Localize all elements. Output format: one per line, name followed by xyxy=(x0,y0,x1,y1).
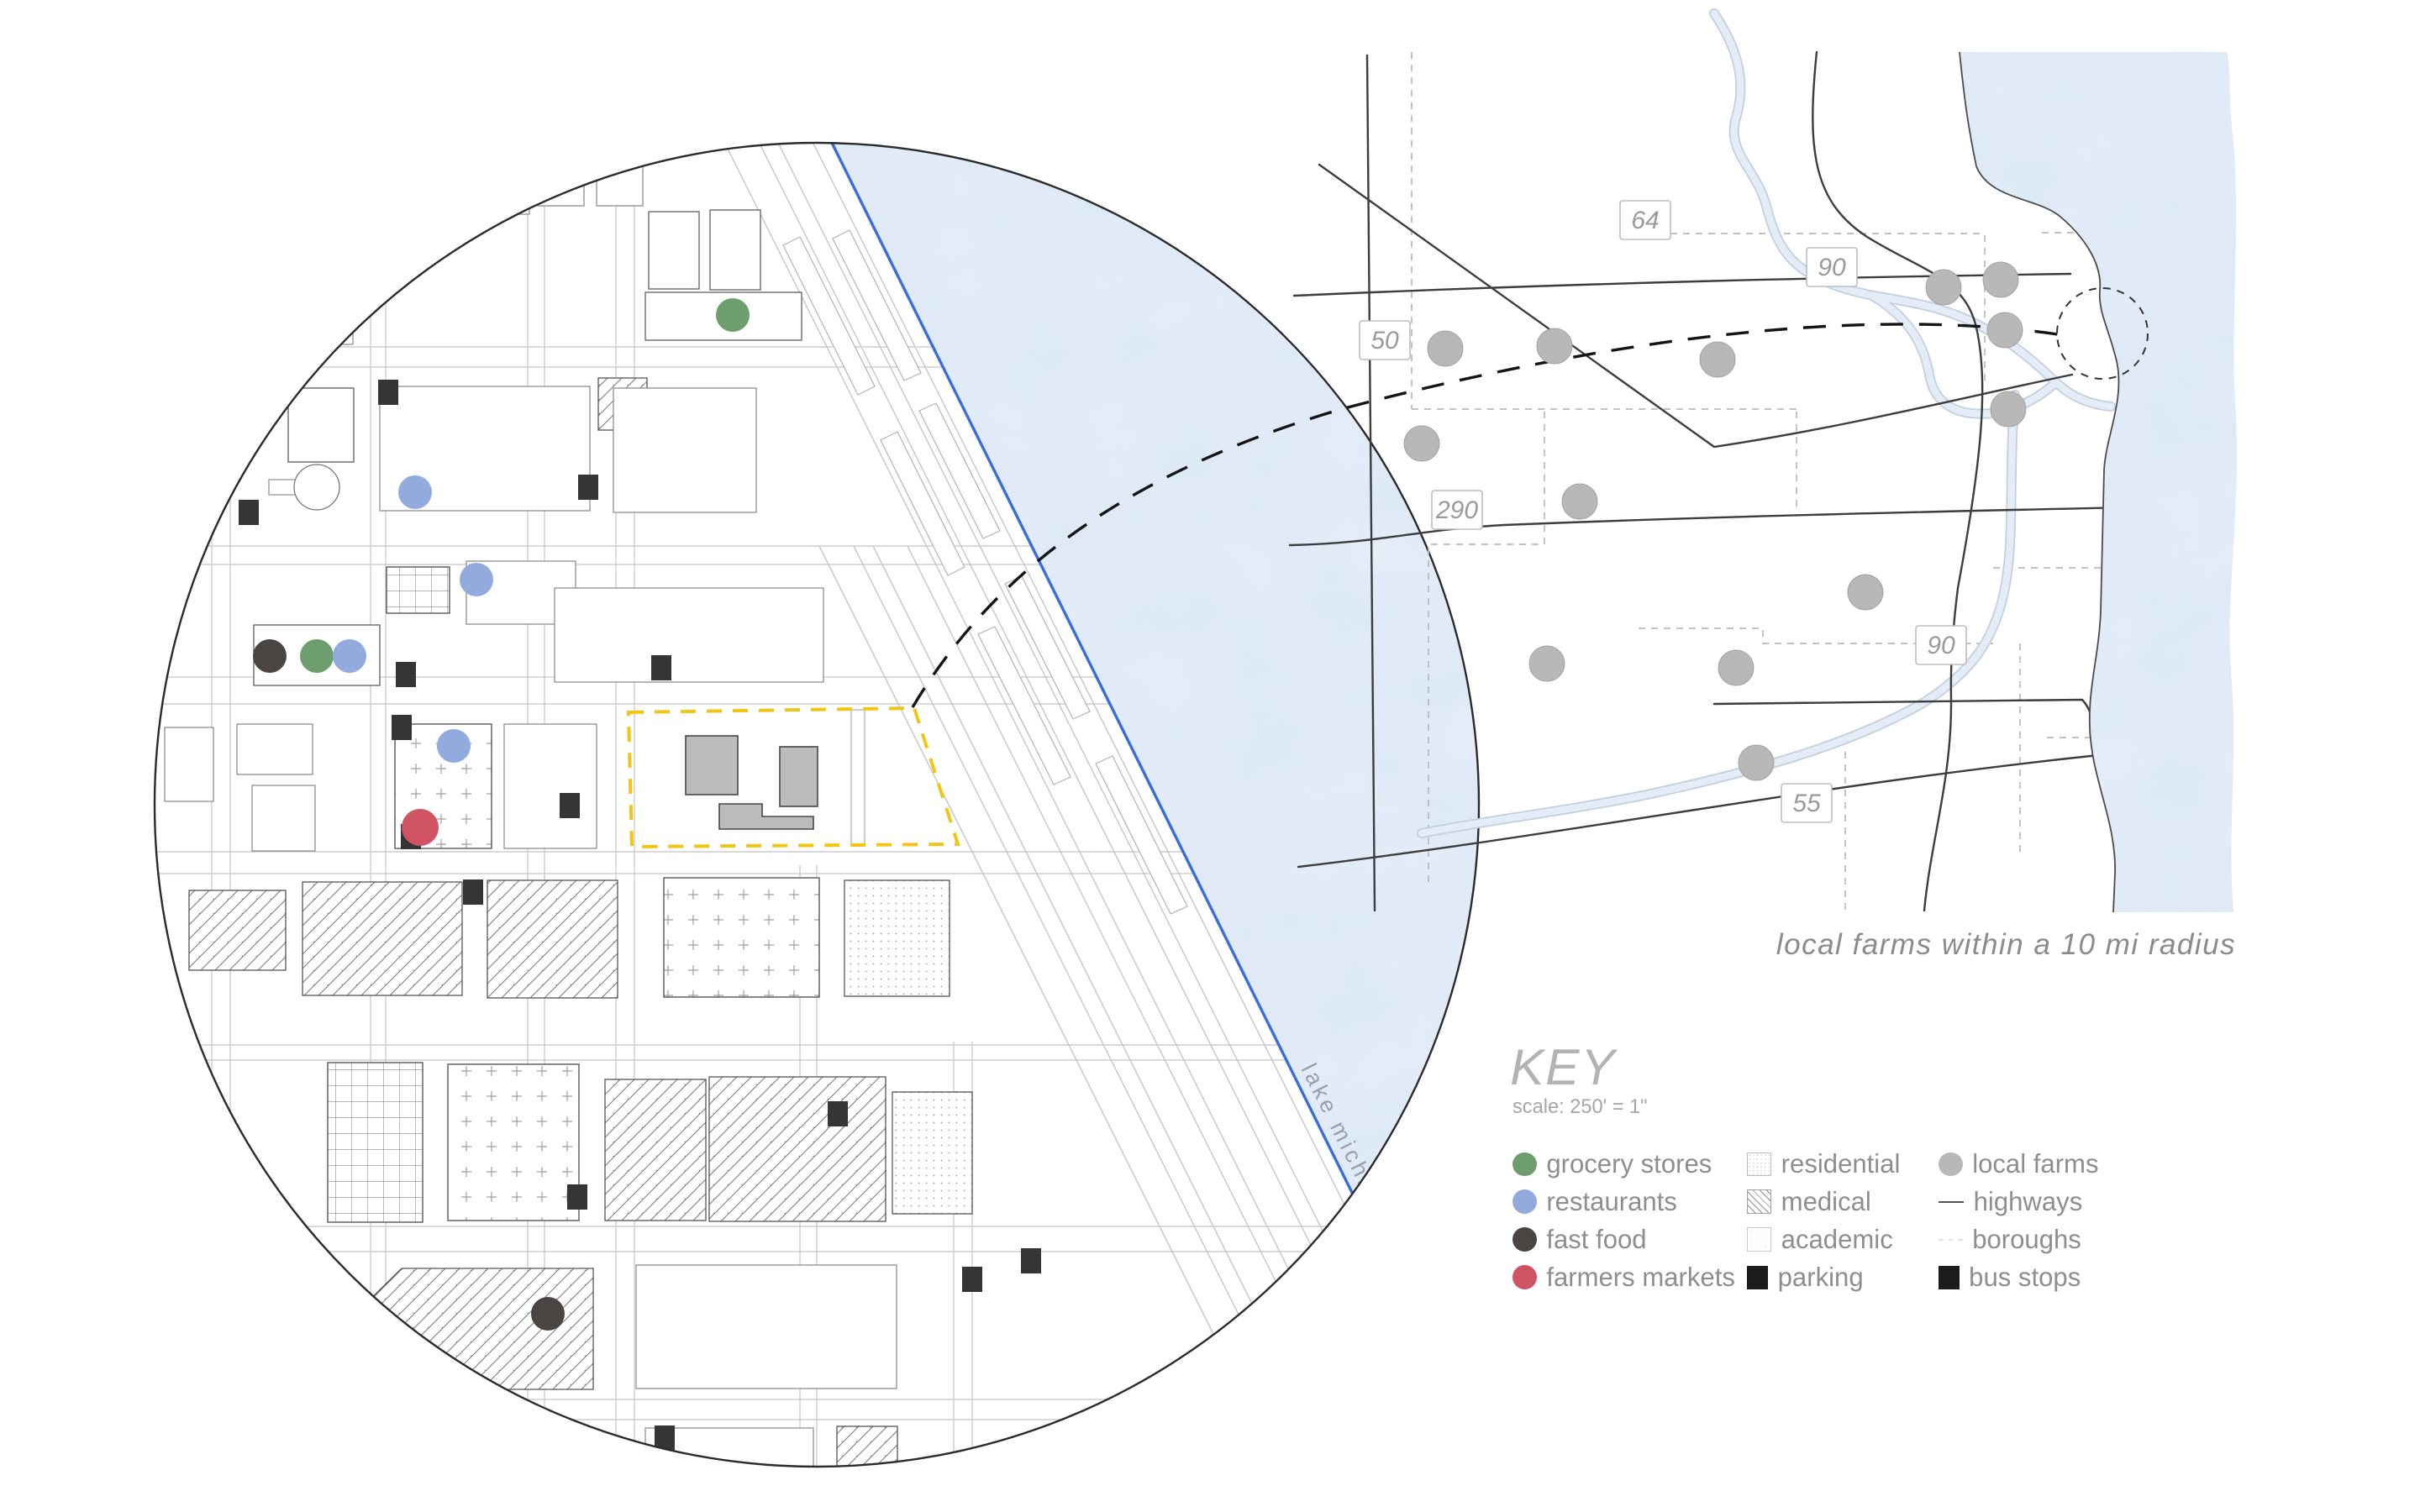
key-scale-note: scale: 250' = 1" xyxy=(1512,1098,1648,1118)
local-farm-dot xyxy=(1562,484,1597,519)
highway-shield-number: 290 xyxy=(1435,496,1478,524)
legend-label: local farms xyxy=(1972,1151,2098,1177)
legend-label: residential xyxy=(1781,1151,1901,1177)
highway-shield-number: 50 xyxy=(1370,327,1399,354)
key-title: KEY xyxy=(1510,1042,1616,1092)
transit-square xyxy=(828,1101,848,1126)
legend-symbol-dot xyxy=(1512,1227,1537,1252)
transit-square xyxy=(560,793,580,818)
poster-canvas: lake michigan xyxy=(0,0,2420,1512)
legend-label: grocery stores xyxy=(1546,1151,1712,1177)
highway-shield: 290 xyxy=(1432,491,1482,529)
local-farm-dot xyxy=(1991,391,2026,427)
transit-square xyxy=(378,380,398,405)
legend-row: farmers markets xyxy=(1512,1264,1735,1291)
highway-shield: 50 xyxy=(1360,321,1410,360)
local-farm-dot xyxy=(1537,328,1572,364)
grocery-store-dot xyxy=(300,639,334,673)
legend-column-amenities: grocery storesrestaurantsfast foodfarmer… xyxy=(1512,1151,1735,1302)
restaurant-dot xyxy=(398,475,432,509)
legend-row: local farms xyxy=(1939,1151,2099,1178)
legend-row: grocery stores xyxy=(1512,1151,1735,1178)
transit-square xyxy=(1021,1248,1041,1273)
highway-shield-number: 55 xyxy=(1792,790,1821,817)
legend-row: academic xyxy=(1747,1226,1900,1253)
local-farm-dot xyxy=(1404,426,1439,461)
transit-square xyxy=(392,715,412,740)
legend-column-regional: local farmshighwaysboroughsbus stops xyxy=(1939,1151,2099,1302)
legend-symbol-sq-acad xyxy=(1747,1227,1771,1252)
grocery-store-dot xyxy=(716,298,750,332)
local-farm-dot xyxy=(1718,650,1754,685)
legend-label: academic xyxy=(1781,1226,1893,1252)
legend-label: boroughs xyxy=(1972,1226,2081,1252)
local-farm-dot xyxy=(1926,270,1961,305)
local-farm-dot xyxy=(1700,342,1735,377)
local-farm-dot xyxy=(1739,745,1774,780)
highway-shield: 55 xyxy=(1781,784,1832,822)
legend-row: highways xyxy=(1939,1189,2099,1215)
legend-symbol-line-dashed xyxy=(1939,1239,1963,1241)
transit-square xyxy=(962,1267,982,1292)
highway-shield: 90 xyxy=(1916,626,1966,664)
legend-row: residential xyxy=(1747,1151,1900,1178)
legend-label: farmers markets xyxy=(1546,1264,1735,1290)
legend-symbol-sq-med xyxy=(1747,1189,1771,1214)
transit-square xyxy=(239,500,259,525)
regional-map-caption: local farms within a 10 mi radius xyxy=(1776,930,2236,959)
local-farm-dot xyxy=(1848,575,1883,610)
legend-symbol-dot xyxy=(1939,1152,1963,1177)
highway-shield: 64 xyxy=(1620,201,1670,239)
transit-square xyxy=(463,879,483,905)
legend-label: fast food xyxy=(1546,1226,1646,1252)
legend-symbol-dot xyxy=(1512,1265,1537,1289)
local-farm-dot xyxy=(1987,312,2023,348)
highway-shield-number: 90 xyxy=(1818,254,1846,281)
restaurant-dot xyxy=(460,563,493,596)
transit-square xyxy=(396,662,416,687)
legend-label: restaurants xyxy=(1546,1189,1677,1215)
legend-label: bus stops xyxy=(1969,1264,2081,1290)
transit-square xyxy=(578,475,598,500)
fast-food-dot xyxy=(253,639,287,673)
local-farm-dot xyxy=(1529,646,1565,681)
highway-shield: 90 xyxy=(1807,248,1857,286)
legend-label: parking xyxy=(1778,1264,1864,1290)
round-plaza xyxy=(294,465,339,510)
legend-row: bus stops xyxy=(1939,1264,2099,1291)
fast-food-dot xyxy=(531,1297,565,1331)
transit-square xyxy=(567,1184,587,1210)
regional-lake xyxy=(1960,52,2237,912)
legend-column-landuse: residentialmedicalacademicparking xyxy=(1747,1151,1900,1302)
legend-row: parking xyxy=(1747,1264,1900,1291)
local-farm-dot xyxy=(1428,331,1463,366)
legend-symbol-dot xyxy=(1512,1189,1537,1214)
legend-symbol-sq-solid xyxy=(1747,1266,1768,1289)
legend-symbol-line-solid xyxy=(1939,1201,1964,1203)
legend-label: highways xyxy=(1974,1189,2083,1215)
local-farm-dot xyxy=(1983,262,2018,297)
site-building xyxy=(780,747,818,806)
farmers-market-dot xyxy=(402,809,439,846)
legend-row: boroughs xyxy=(1939,1226,2099,1253)
restaurant-dot xyxy=(437,729,471,763)
restaurant-dot xyxy=(333,639,366,673)
legend-row: restaurants xyxy=(1512,1189,1735,1215)
legend-symbol-sq-solid xyxy=(1939,1266,1960,1289)
detail-map: lake michigan xyxy=(126,107,1512,1495)
legend-row: medical xyxy=(1747,1189,1900,1215)
transit-square xyxy=(651,655,671,680)
legend-symbol-dot xyxy=(1512,1152,1537,1177)
highway-shield-number: 64 xyxy=(1631,207,1659,234)
legend-symbol-sq-res xyxy=(1747,1152,1771,1177)
site-building xyxy=(686,736,738,795)
legend-row: fast food xyxy=(1512,1226,1735,1253)
highway-shield-number: 90 xyxy=(1927,632,1955,659)
legend-label: medical xyxy=(1781,1189,1871,1215)
